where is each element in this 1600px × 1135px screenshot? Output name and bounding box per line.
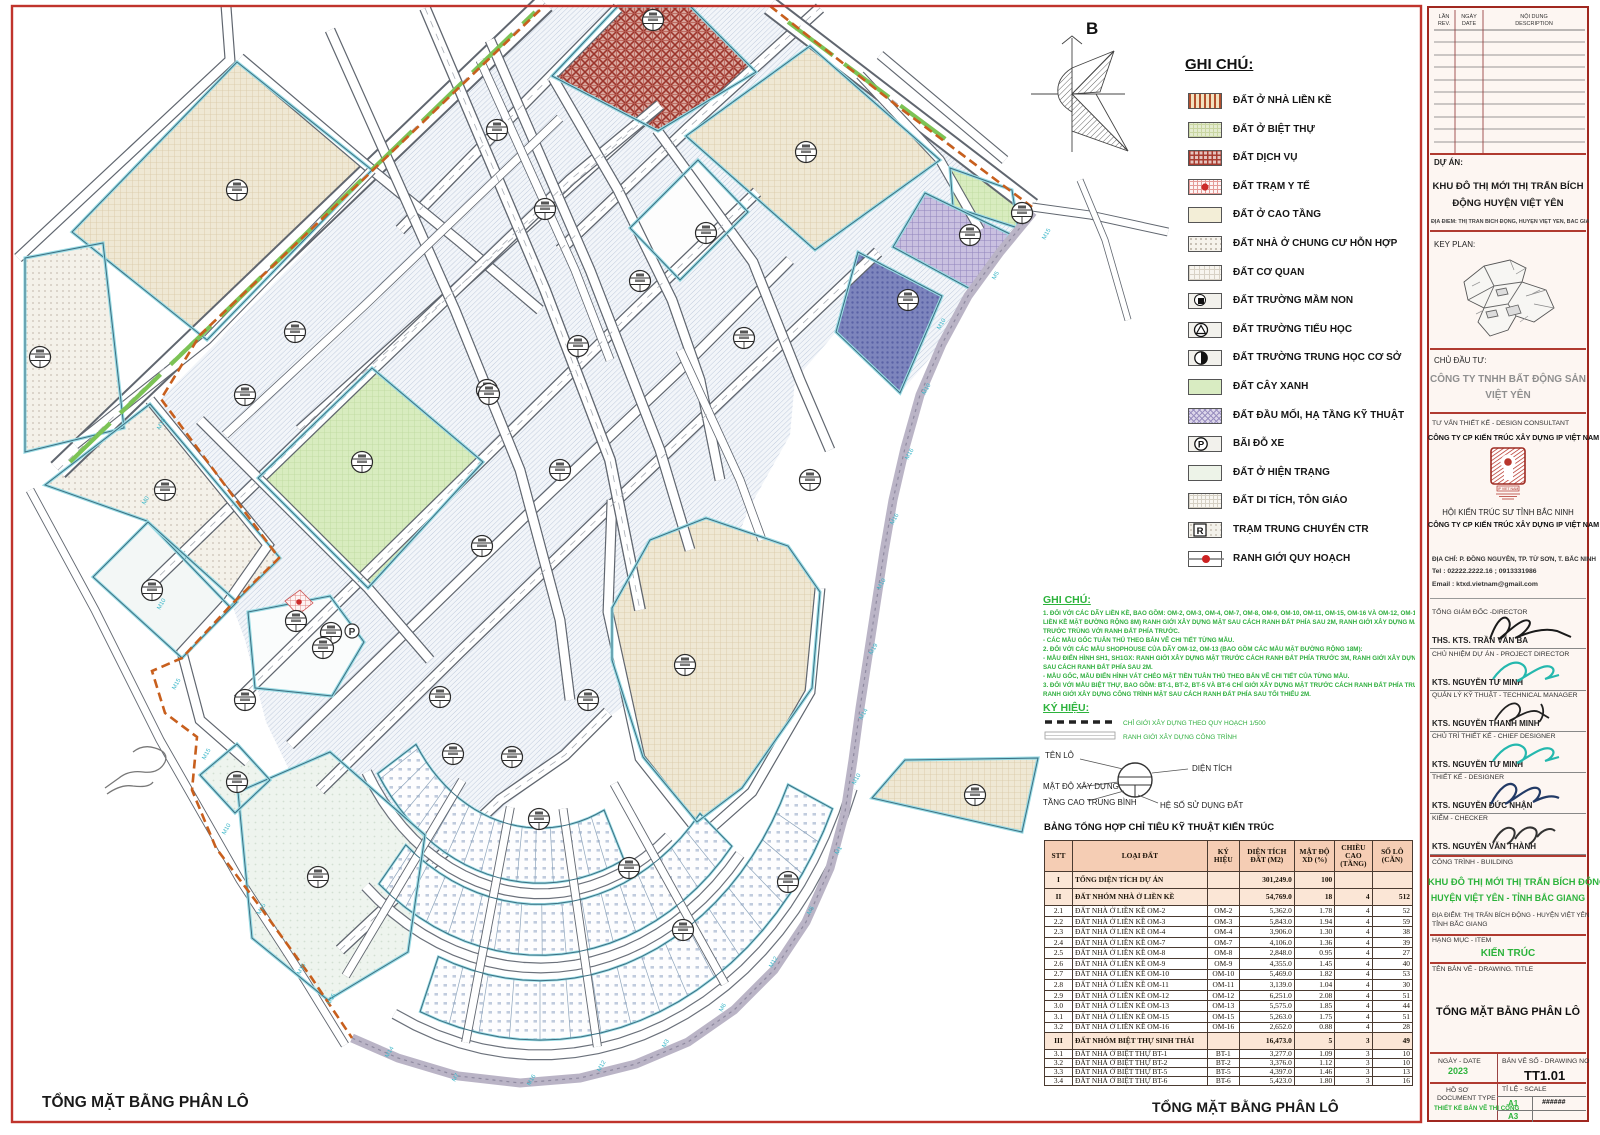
svg-text:R: R: [1197, 526, 1204, 537]
svg-text:DESCRIPTION: DESCRIPTION: [1515, 21, 1553, 27]
svg-text:B: B: [1086, 19, 1098, 38]
svg-text:IP VIET NAM: IP VIET NAM: [1498, 487, 1519, 491]
svg-text:LẦN: LẦN: [1439, 13, 1450, 20]
svg-text:P: P: [349, 627, 356, 638]
svg-text:TỔNG MẶT BẰNG PHÂN LÔ: TỔNG MẶT BẰNG PHÂN LÔ: [42, 1093, 249, 1111]
svg-text:NGÀY: NGÀY: [1461, 13, 1477, 20]
svg-text:HỆ SỐ SỬ DỤNG ĐẤT: HỆ SỐ SỬ DỤNG ĐẤT: [1160, 800, 1243, 810]
svg-text:NỘI DUNG: NỘI DUNG: [1520, 13, 1548, 20]
svg-text:RANH GIỚI XÂY DỰNG CÔNG TRÌNH: RANH GIỚI XÂY DỰNG CÔNG TRÌNH: [1123, 732, 1237, 741]
svg-text:DIỆN TÍCH: DIỆN TÍCH: [1192, 764, 1232, 773]
svg-text:P: P: [1198, 440, 1205, 451]
svg-text:CHỈ GIỚI XÂY DỰNG THEO QUY HOẠ: CHỈ GIỚI XÂY DỰNG THEO QUY HOẠCH 1/500: [1123, 718, 1266, 727]
svg-text:TỔNG MẶT BẰNG PHÂN LÔ: TỔNG MẶT BẰNG PHÂN LÔ: [1152, 1098, 1339, 1115]
svg-text:MẬT ĐỘ XÂY DỰNG: MẬT ĐỘ XÂY DỰNG: [1043, 782, 1119, 791]
svg-text:DATE: DATE: [1462, 21, 1477, 27]
svg-text:TẦNG CAO TRUNG BÌNH: TẦNG CAO TRUNG BÌNH: [1043, 797, 1137, 807]
svg-text:TÊN LÔ: TÊN LÔ: [1045, 751, 1074, 760]
svg-text:REV.: REV.: [1438, 21, 1451, 27]
